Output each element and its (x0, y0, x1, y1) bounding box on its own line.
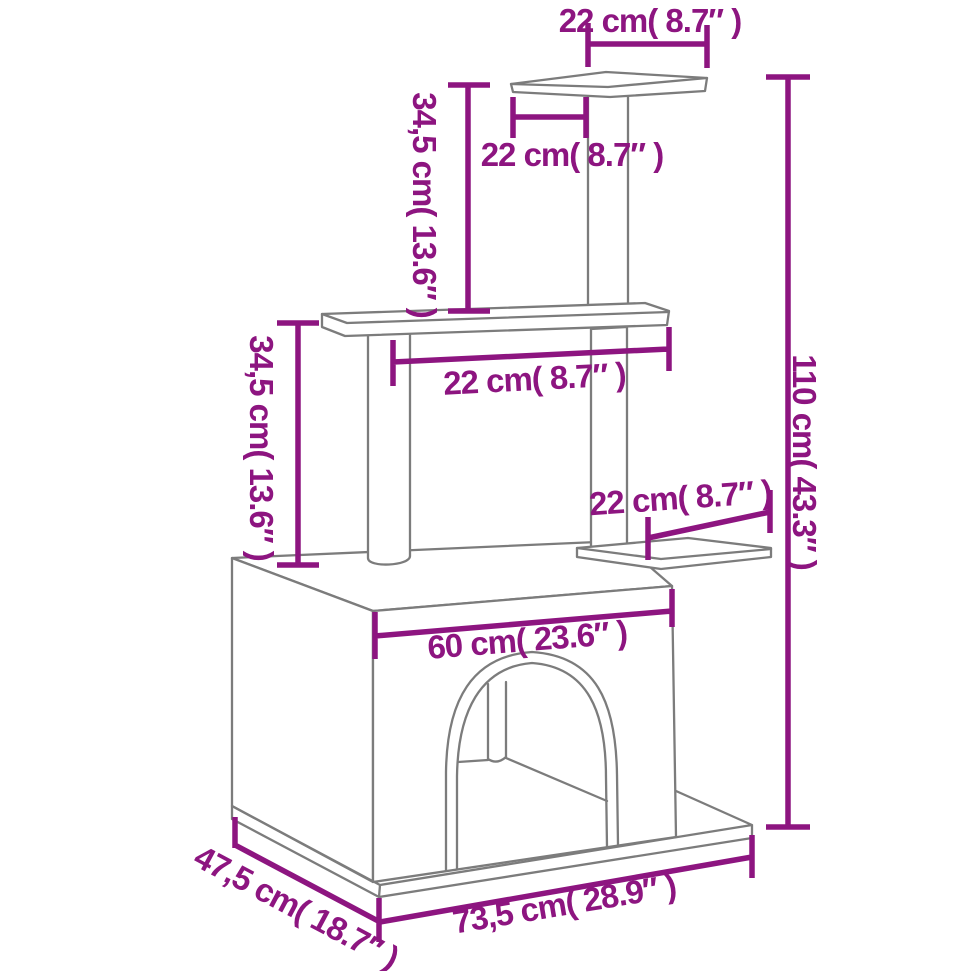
dim-middle-section-height: 34,5 cm( 13.6″ ) (243, 323, 319, 565)
dim-base-width-label: 73,5 cm( 28.9″ ) (450, 867, 678, 941)
dim-middle-section-height-line (277, 323, 319, 565)
product-dimension-image: 22 cm( 8.7″ ) 22 cm( 8.7″ ) 34,5 cm( 13.… (0, 0, 970, 971)
top-post (588, 86, 628, 309)
dim-upper-section-height-line (448, 85, 490, 311)
dim-top-post-offset: 22 cm( 8.7″ ) (481, 97, 664, 173)
dim-upper-section-height-label: 34,5 cm( 13.6″ ) (406, 92, 443, 317)
dim-top-post-offset-line (513, 97, 586, 138)
dim-total-height: 110 cm( 43.3″ ) (766, 77, 823, 827)
dim-top-platform-width-label: 22 cm( 8.7″ ) (559, 2, 742, 39)
left-post (368, 331, 410, 565)
dim-total-height-label: 110 cm( 43.3″ ) (786, 354, 823, 569)
cat-tree-dimension-diagram: 22 cm( 8.7″ ) 22 cm( 8.7″ ) 34,5 cm( 13.… (0, 0, 970, 971)
dim-top-platform-width: 22 cm( 8.7″ ) (559, 2, 742, 68)
dim-middle-section-height-label: 34,5 cm( 13.6″ ) (243, 335, 280, 560)
dim-upper-section-height: 34,5 cm( 13.6″ ) (406, 85, 490, 318)
dim-top-post-offset-label: 22 cm( 8.7″ ) (481, 136, 664, 173)
house-left-face (232, 558, 373, 882)
